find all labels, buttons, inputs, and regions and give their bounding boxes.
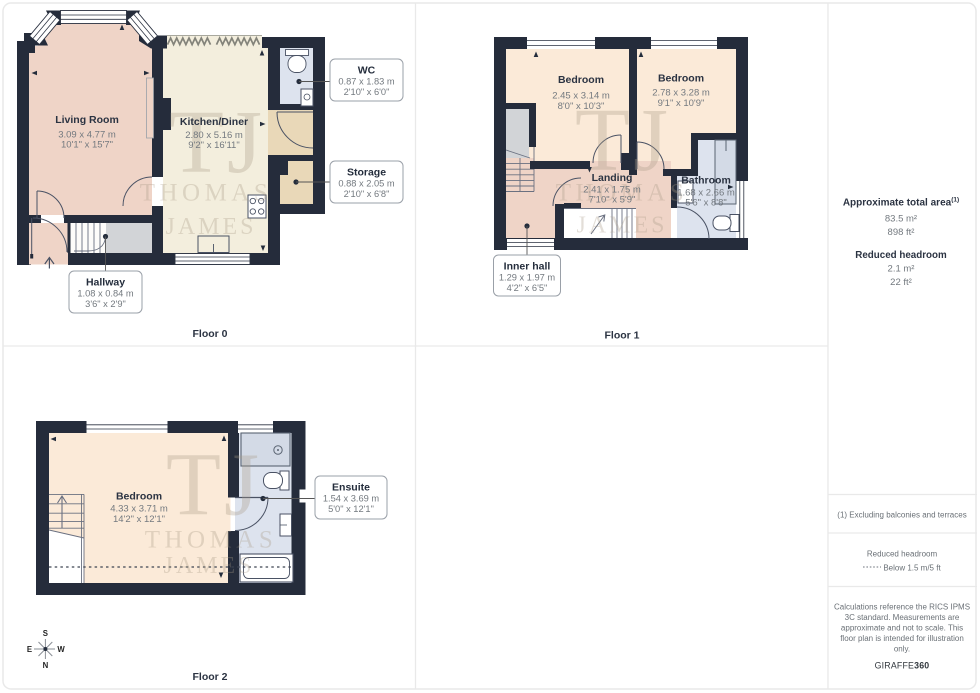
svg-text:Floor 0: Floor 0 [192,328,227,340]
svg-text:Approximate total area(1): Approximate total area(1) [843,197,959,209]
svg-text:1.54 x 3.69 m: 1.54 x 3.69 m [323,494,380,504]
svg-text:10'1" x 15'7": 10'1" x 15'7" [61,140,113,151]
svg-text:9'1" x 10'9": 9'1" x 10'9" [658,98,705,109]
svg-text:JAMES: JAMES [165,214,256,240]
svg-text:0.88 x 2.05 m: 0.88 x 2.05 m [338,179,395,189]
svg-text:Bedroom: Bedroom [558,74,604,86]
svg-text:Inner hall: Inner hall [504,261,551,273]
svg-text:4'2" x 6'5": 4'2" x 6'5" [507,283,548,293]
svg-text:83.5 m²: 83.5 m² [885,214,917,225]
svg-text:9'2" x 16'11": 9'2" x 16'11" [188,140,239,151]
svg-text:E: E [27,645,32,654]
svg-text:JAMES: JAMES [163,553,254,579]
svg-text:JAMES: JAMES [576,213,667,239]
svg-text:14'2" x 12'1": 14'2" x 12'1" [113,514,165,525]
svg-text:S: S [43,629,48,638]
svg-text:GIRAFFE360: GIRAFFE360 [875,661,930,671]
svg-text:WC: WC [358,65,376,77]
svg-text:Landing: Landing [592,172,633,184]
svg-text:7'10" x 5'9": 7'10" x 5'9" [589,195,636,206]
svg-text:898 ft²: 898 ft² [888,227,915,238]
svg-text:THOMAS: THOMAS [145,527,278,554]
svg-text:Floor 1: Floor 1 [604,330,639,342]
svg-text:TJ: TJ [166,436,262,535]
svg-text:Storage: Storage [347,167,386,179]
svg-text:3C standard. Measurements are: 3C standard. Measurements are [845,613,960,622]
svg-text:Ensuite: Ensuite [332,482,370,494]
svg-text:2'10" x 6'8": 2'10" x 6'8" [344,189,390,199]
svg-text:5'6" x 8'8": 5'6" x 8'8" [685,198,727,209]
svg-text:Bathroom: Bathroom [681,175,731,187]
svg-text:Below 1.5 m/5 ft: Below 1.5 m/5 ft [883,564,941,573]
svg-text:2'10" x 6'0": 2'10" x 6'0" [344,87,390,97]
svg-text:0.87 x 1.83 m: 0.87 x 1.83 m [338,77,395,87]
svg-text:N: N [43,661,49,670]
svg-text:Floor 2: Floor 2 [192,671,227,683]
svg-text:8'0" x 10'3": 8'0" x 10'3" [558,101,605,112]
svg-text:Reduced headroom: Reduced headroom [867,550,938,559]
svg-text:4.33 x 3.71 m: 4.33 x 3.71 m [110,504,168,515]
svg-text:1.08 x 0.84 m: 1.08 x 0.84 m [77,289,134,299]
svg-text:Bedroom: Bedroom [658,73,704,85]
svg-text:approximate and not to scale.: approximate and not to scale. This [841,624,963,633]
svg-text:2.78 x 3.28 m: 2.78 x 3.28 m [652,88,710,99]
svg-text:2.1 m²: 2.1 m² [888,264,915,275]
svg-text:THOMAS: THOMAS [140,180,273,207]
svg-text:floor plan is intended for ill: floor plan is intended for illustration [840,634,964,643]
svg-text:Calculations reference the RIC: Calculations reference the RICS IPMS [834,603,970,612]
svg-text:only.: only. [894,645,910,654]
svg-text:22 ft²: 22 ft² [890,277,912,288]
svg-text:(1) Excluding balconies and te: (1) Excluding balconies and terraces [837,511,966,520]
svg-text:1.29 x 1.97 m: 1.29 x 1.97 m [499,273,556,283]
svg-text:Reduced headroom: Reduced headroom [855,250,947,261]
svg-text:W: W [57,645,65,654]
svg-text:5'0" x 12'1": 5'0" x 12'1" [328,504,374,514]
svg-text:3'6" x 2'9": 3'6" x 2'9" [85,299,126,309]
svg-text:Bedroom: Bedroom [116,491,162,503]
svg-text:Living Room: Living Room [55,114,119,126]
svg-text:Kitchen/Diner: Kitchen/Diner [180,116,248,128]
svg-text:Hallway: Hallway [86,277,125,289]
